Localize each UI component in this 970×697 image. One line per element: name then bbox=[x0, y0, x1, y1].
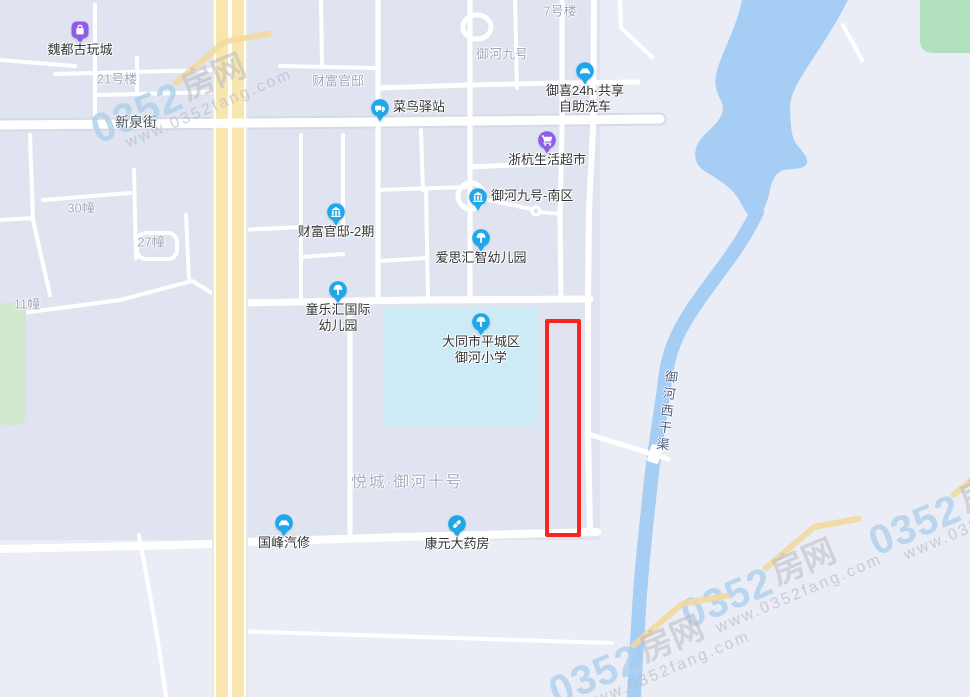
plot-highlight bbox=[545, 319, 581, 537]
poi-label-line: 自助洗车 bbox=[546, 99, 624, 115]
poi-label: 御喜24h·共享自助洗车 bbox=[546, 83, 624, 115]
school-grounds bbox=[384, 308, 538, 425]
poi-marker[interactable]: 菜鸟驿站 bbox=[370, 98, 390, 124]
map-canvas[interactable]: 0352房网www.0352fang.com0352房网www.0352fang… bbox=[0, 0, 970, 697]
poi-label-line: 幼儿园 bbox=[305, 318, 370, 334]
poi-marker[interactable]: 康元大药房 bbox=[447, 514, 467, 540]
poi-marker[interactable]: 浙杭生活超市 bbox=[537, 130, 557, 156]
poi-label: 菜鸟驿站 bbox=[393, 99, 445, 115]
poi-label: 童乐汇国际幼儿园 bbox=[305, 302, 370, 334]
truck-icon bbox=[370, 98, 390, 124]
poi-marker[interactable]: 国峰汽修 bbox=[274, 513, 294, 539]
poi-marker[interactable]: 财富官邸-2期 bbox=[326, 202, 346, 228]
poi-label-line: 御河小学 bbox=[442, 350, 520, 366]
poi-marker[interactable]: 爱思汇智幼儿园 bbox=[471, 228, 491, 254]
poi-marker[interactable]: 御喜24h·共享自助洗车 bbox=[575, 61, 595, 87]
poi-label: 浙杭生活超市 bbox=[508, 152, 586, 168]
poi-label: 御河九号-南区 bbox=[491, 188, 573, 204]
poi-label-line: 御喜24h·共享 bbox=[546, 83, 624, 99]
poi-label: 大同市平城区御河小学 bbox=[442, 334, 520, 366]
highway bbox=[213, 0, 247, 697]
bank-icon bbox=[468, 187, 488, 213]
poi-label-line: 大同市平城区 bbox=[442, 334, 520, 350]
poi-label: 魏都古玩城 bbox=[47, 42, 112, 58]
poi-marker[interactable]: 大同市平城区御河小学 bbox=[471, 312, 491, 338]
poi-label: 爱思汇智幼儿园 bbox=[435, 250, 526, 266]
xinquan-street-road bbox=[0, 119, 660, 125]
poi-label: 财富官邸-2期 bbox=[298, 224, 375, 240]
poi-marker[interactable]: 御河九号-南区 bbox=[468, 187, 488, 213]
poi-label: 国峰汽修 bbox=[258, 535, 310, 551]
poi-label-line: 童乐汇国际 bbox=[305, 302, 370, 318]
poi-marker[interactable]: 童乐汇国际幼儿园 bbox=[328, 280, 348, 306]
poi-label: 康元大药房 bbox=[424, 536, 489, 552]
poi-marker[interactable]: 魏都古玩城 bbox=[70, 20, 90, 46]
